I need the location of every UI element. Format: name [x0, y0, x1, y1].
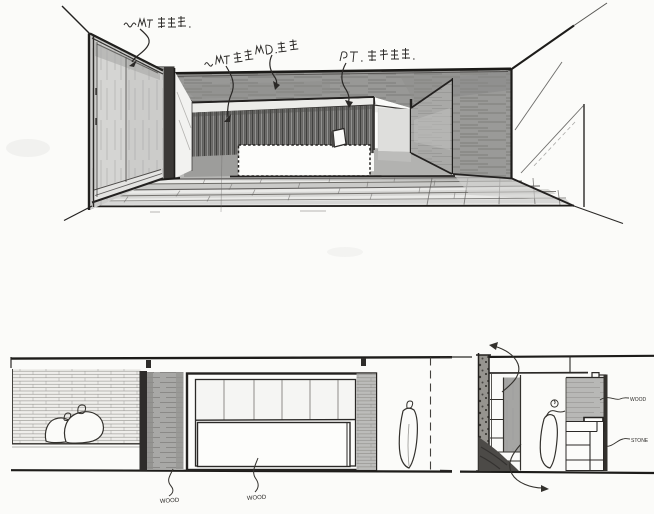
svg-text:STONE: STONE: [631, 438, 649, 444]
svg-text:WOOD: WOOD: [630, 397, 646, 403]
